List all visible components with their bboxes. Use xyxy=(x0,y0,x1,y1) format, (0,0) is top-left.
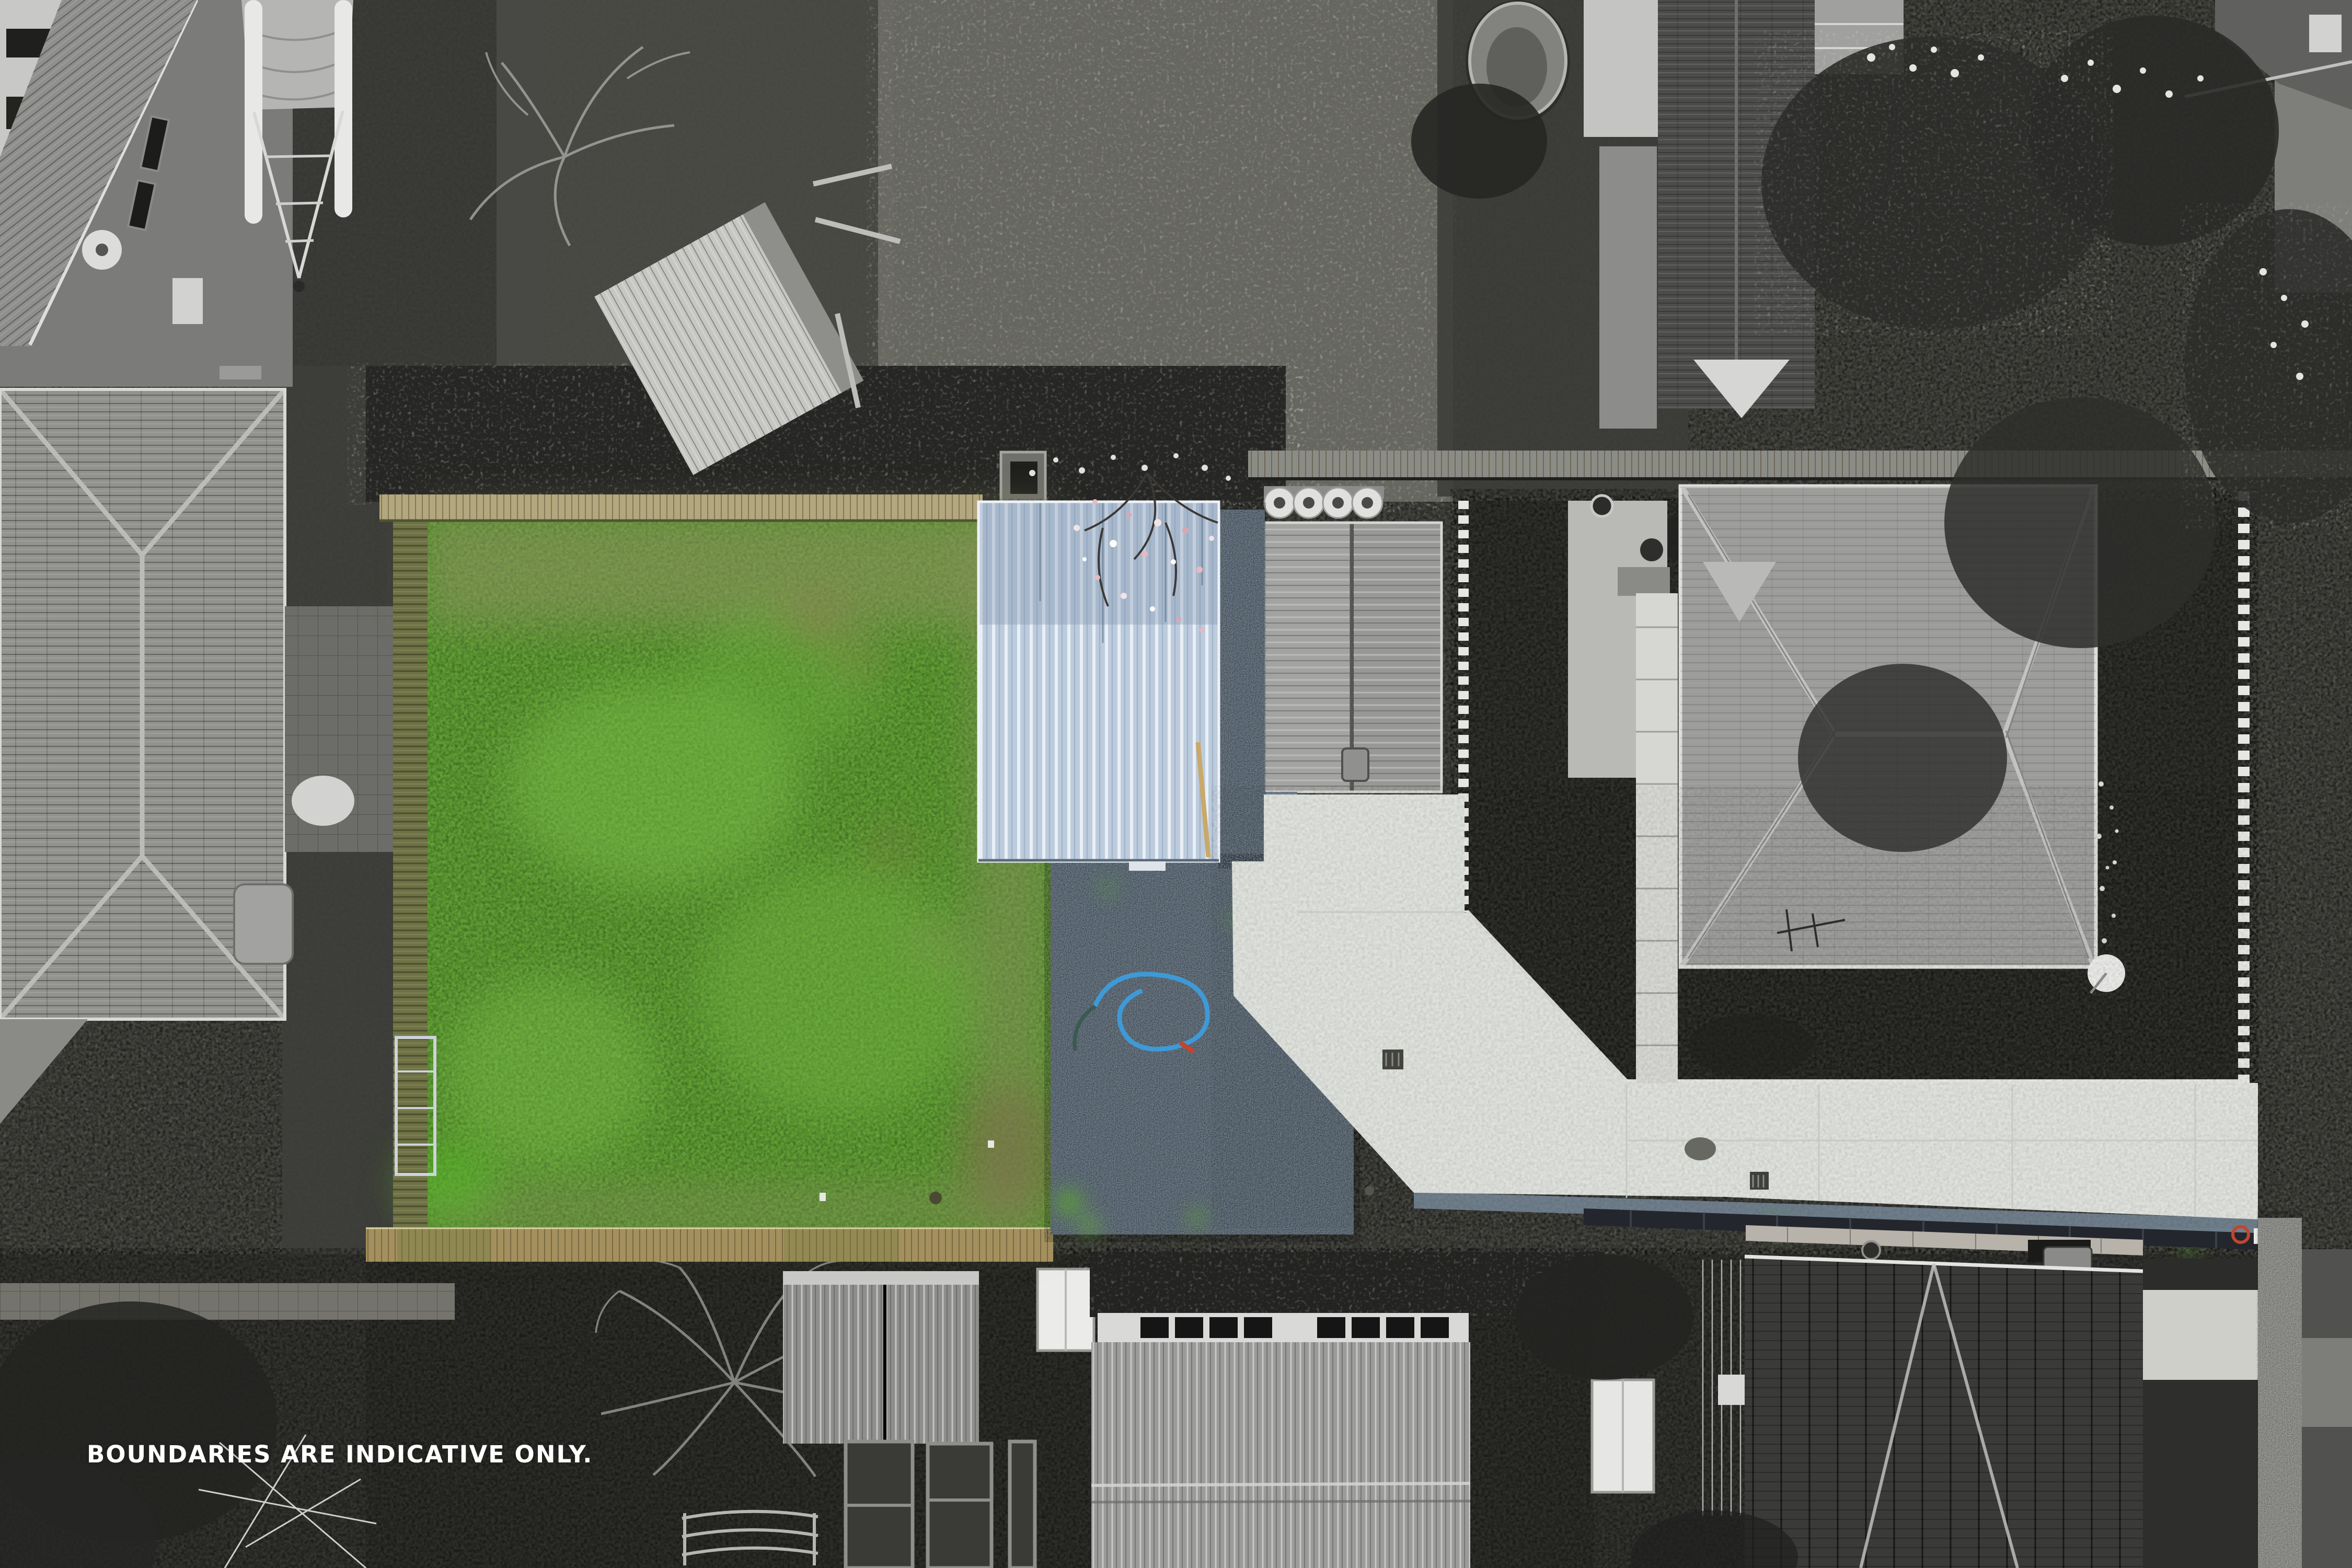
concrete-pad xyxy=(2143,1290,2258,1380)
outdoor-sofa xyxy=(1618,567,1670,596)
fence-rail-top xyxy=(379,494,983,522)
hose-reel-icon xyxy=(1862,1241,1880,1259)
drain-icon xyxy=(1685,1137,1716,1160)
garden-shed-gray xyxy=(783,1271,979,1444)
neighbour-garage xyxy=(1264,486,1442,792)
boundaries-disclaimer: BOUNDARIES ARE INDICATIVE ONLY. xyxy=(87,1440,593,1468)
boardwalk xyxy=(366,1227,1053,1262)
heat-pump xyxy=(1718,1375,1745,1405)
lawn xyxy=(402,513,1058,1235)
wheelie-bin xyxy=(1342,748,1368,781)
grate-icon xyxy=(1382,1050,1403,1069)
aerial-photo-canvas xyxy=(0,0,2352,1568)
grate-icon xyxy=(1750,1172,1769,1190)
aerial-photo: BOUNDARIES ARE INDICATIVE ONLY. xyxy=(0,0,2352,1568)
tarp xyxy=(292,776,354,826)
water-tank xyxy=(234,884,293,964)
deck-pergola xyxy=(1636,593,1678,1085)
